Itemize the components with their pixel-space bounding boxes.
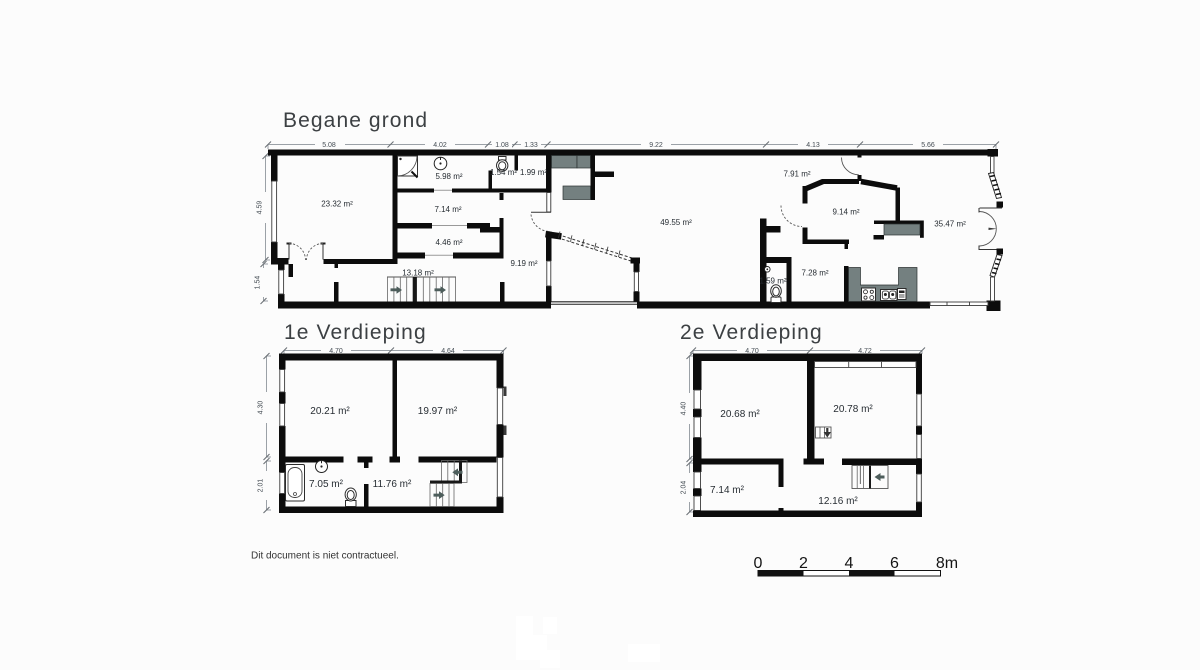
svg-text:1.08: 1.08 (495, 142, 509, 149)
svg-text:5.66: 5.66 (921, 142, 935, 149)
svg-text:20.78 m²: 20.78 m² (833, 404, 873, 415)
svg-text:5.08: 5.08 (322, 142, 336, 149)
svg-text:4: 4 (845, 555, 854, 572)
svg-text:2e Verdieping: 2e Verdieping (680, 321, 823, 344)
svg-text:2.04: 2.04 (681, 481, 688, 495)
svg-text:12.16 m²: 12.16 m² (818, 496, 858, 507)
svg-text:2: 2 (799, 555, 808, 572)
svg-text:9.22: 9.22 (649, 142, 663, 149)
svg-text:9.14 m²: 9.14 m² (832, 208, 859, 217)
svg-text:1e Verdieping: 1e Verdieping (284, 321, 427, 344)
svg-text:4.30: 4.30 (258, 401, 265, 415)
svg-text:5.98 m²: 5.98 m² (435, 172, 462, 181)
svg-text:Begane grond: Begane grond (283, 109, 428, 132)
svg-text:1.54: 1.54 (255, 276, 262, 290)
svg-text:7.28 m²: 7.28 m² (801, 269, 828, 278)
svg-text:9.19 m²: 9.19 m² (510, 259, 537, 268)
svg-text:6: 6 (890, 555, 899, 572)
svg-text:0: 0 (754, 555, 763, 572)
svg-text:2.01: 2.01 (258, 479, 265, 493)
svg-text:1.33: 1.33 (524, 142, 538, 149)
svg-text:1.59 m²: 1.59 m² (759, 277, 786, 286)
svg-text:13.18 m²: 13.18 m² (402, 269, 434, 278)
svg-text:4.02: 4.02 (433, 142, 447, 149)
svg-text:Dit document is niet contractu: Dit document is niet contractueel. (251, 551, 399, 562)
svg-text:4.59: 4.59 (257, 201, 264, 215)
svg-text:35.47 m²: 35.47 m² (934, 220, 966, 229)
svg-text:49.55 m²: 49.55 m² (660, 218, 692, 227)
svg-text:4.13: 4.13 (806, 142, 820, 149)
svg-text:23.32 m²: 23.32 m² (321, 200, 353, 209)
svg-text:20.68 m²: 20.68 m² (720, 409, 760, 420)
svg-text:7.05 m²: 7.05 m² (309, 479, 344, 490)
svg-text:8m: 8m (936, 555, 958, 572)
svg-text:4.40: 4.40 (681, 402, 688, 416)
svg-text:19.97 m²: 19.97 m² (418, 406, 458, 417)
svg-text:1.54 m²: 1.54 m² (490, 168, 517, 177)
svg-text:11.76 m²: 11.76 m² (373, 479, 412, 490)
svg-text:1.99 m²: 1.99 m² (520, 168, 547, 177)
svg-text:7.14 m²: 7.14 m² (710, 485, 745, 496)
svg-text:7.91 m²: 7.91 m² (783, 170, 810, 179)
svg-text:7.14 m²: 7.14 m² (434, 205, 461, 214)
svg-text:4.46 m²: 4.46 m² (435, 238, 462, 247)
svg-text:20.21 m²: 20.21 m² (310, 406, 350, 417)
